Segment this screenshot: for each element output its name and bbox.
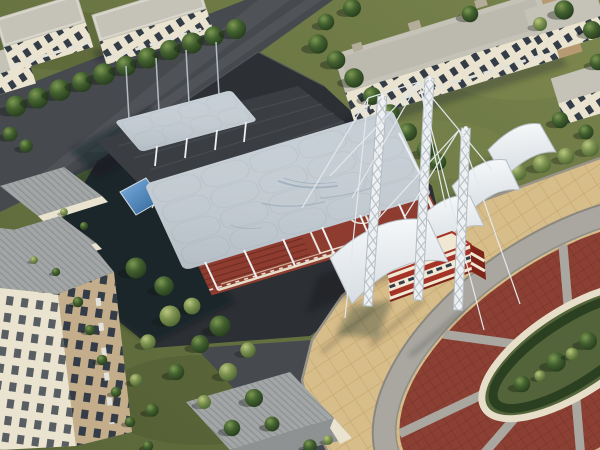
- aerial-render: [0, 0, 600, 450]
- render-viewport: Aerial 3D rendering of a sports complex:…: [0, 0, 600, 450]
